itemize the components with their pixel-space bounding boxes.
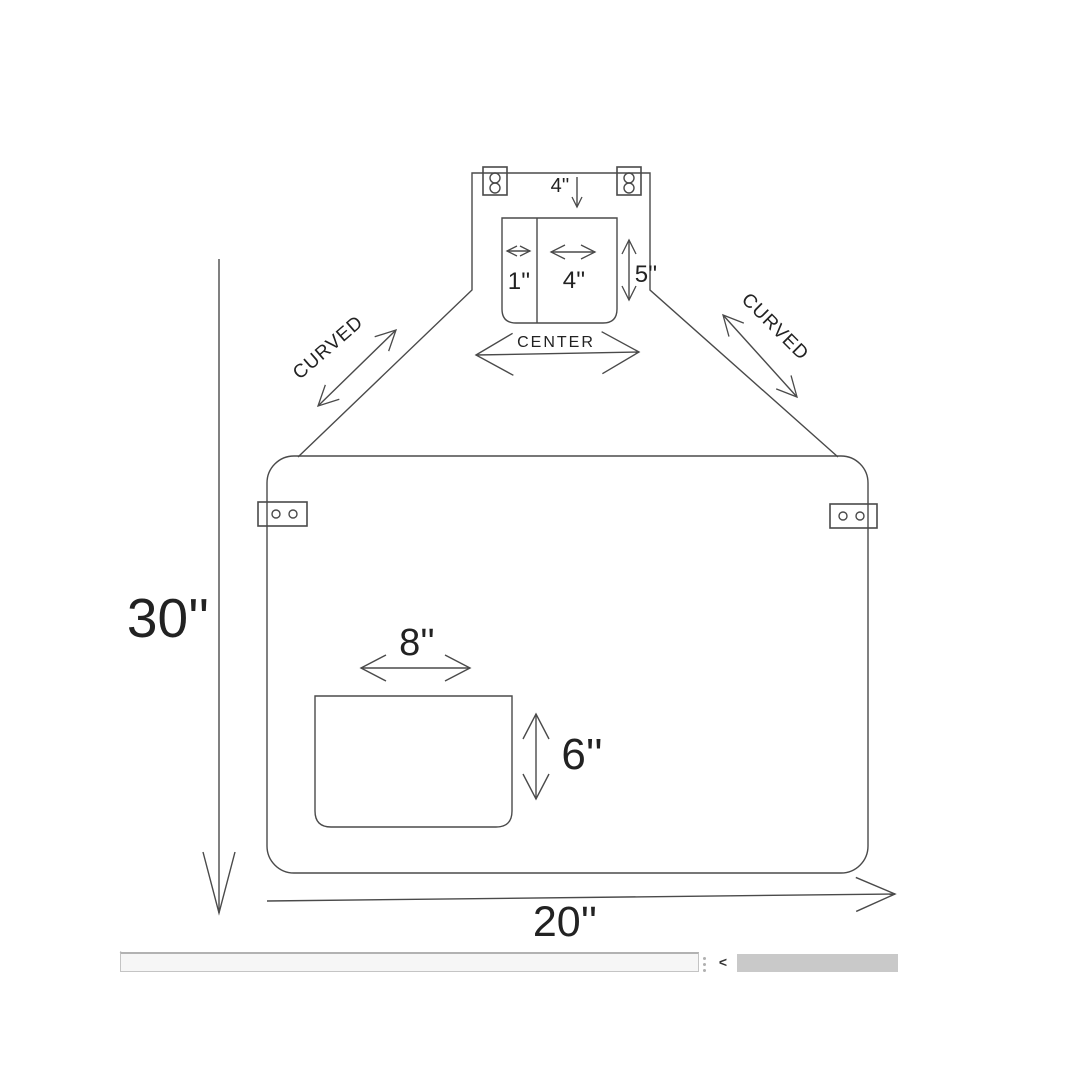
label-bib-pocket-height: 5'' (635, 261, 658, 288)
grommet-icon (490, 183, 500, 193)
scroll-left-button[interactable]: < (711, 951, 735, 972)
apron-dimension-drawing: 4'' 1'' 4'' 5'' CENTER CURVED CURVED 8''… (0, 0, 1080, 1080)
grommet-icon (289, 510, 297, 518)
label-bib-top-width: 4'' (551, 175, 570, 197)
grommet-icon (624, 183, 634, 193)
label-curved-left: CURVED (289, 312, 368, 384)
label-center: CENTER (517, 334, 595, 351)
grommet-icon (624, 173, 634, 183)
waist-tab-left (258, 502, 307, 526)
scrollbar-divider-dots-icon (703, 957, 706, 972)
label-body-width: 20'' (533, 898, 597, 946)
label-bib-hem-width: 1'' (508, 268, 531, 295)
apron-body-outline (267, 456, 868, 873)
label-pocket-height: 6'' (561, 730, 602, 779)
grommet-icon (856, 512, 864, 520)
chevron-left-icon: < (719, 954, 727, 970)
body-pocket-outline (315, 696, 512, 827)
label-body-height: 30'' (127, 587, 209, 649)
arrow-center (476, 352, 639, 355)
apron-pattern-page: 4'' 1'' 4'' 5'' CENTER CURVED CURVED 8''… (0, 0, 1080, 1080)
grommet-icon (839, 512, 847, 520)
grommet-icon (490, 173, 500, 183)
label-bib-pocket-width: 4'' (563, 267, 586, 294)
grommet-icon (272, 510, 280, 518)
horizontal-scrollbar-thumb[interactable] (737, 954, 898, 972)
horizontal-scrollbar-track[interactable] (120, 952, 699, 972)
label-pocket-width: 8'' (399, 622, 435, 664)
bib-tab-left (483, 167, 507, 195)
waist-tab-right (830, 504, 877, 528)
bib-tab-right (617, 167, 641, 195)
label-curved-right: CURVED (737, 289, 813, 365)
